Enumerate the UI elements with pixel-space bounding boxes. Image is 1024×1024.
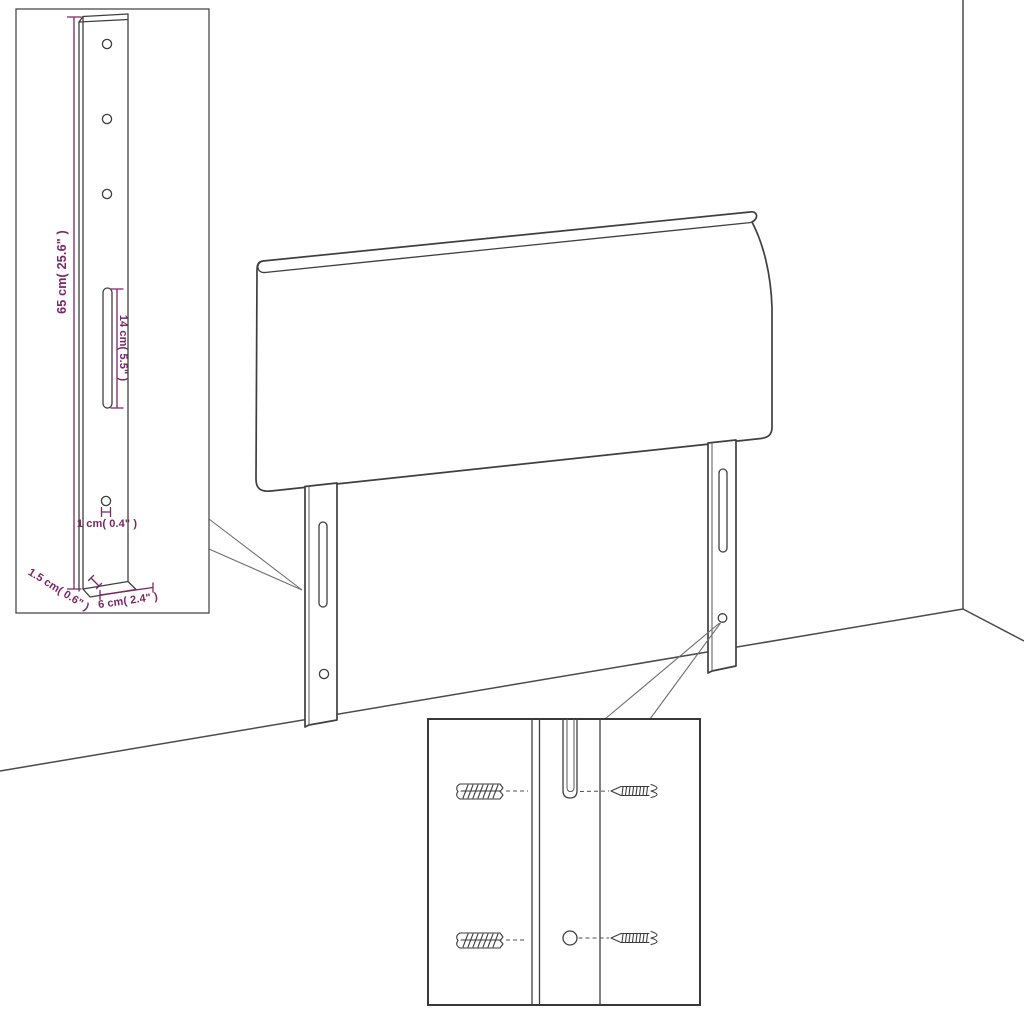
slot-dimension-label: 14 cm( 5.5" ) [117, 315, 129, 382]
bracket-drawing [79, 14, 136, 597]
hardware-inset-leader-lines [605, 623, 721, 719]
hardware-inset-border [428, 719, 700, 1005]
hardware-detail-inset [428, 719, 700, 1005]
callout-leaders [209, 519, 721, 719]
bracket-top-inner-edge [79, 20, 128, 23]
left-leg [305, 483, 337, 727]
left-leg-body [305, 483, 337, 727]
height-dimension-label: 65 cm( 25.6" ) [55, 230, 69, 314]
bracket-inset-leader-lines [209, 519, 302, 590]
headboard-assembly-diagram: 65 cm( 25.6" ) 14 cm( 5.5" ) 1 cm( 0.4" … [0, 0, 1024, 1024]
panel-outline [256, 212, 772, 491]
bracket-hole-3 [102, 189, 111, 198]
right-leg [708, 440, 736, 673]
hole-dimension-bracket [102, 508, 111, 517]
depth-dimension-label: 1.5 cm( 0.6" ) [26, 566, 92, 613]
bracket-slot [103, 288, 112, 408]
diagram-canvas: 65 cm( 25.6" ) 14 cm( 5.5" ) 1 cm( 0.4" … [0, 0, 1024, 1024]
bracket-detail-inset: 65 cm( 25.6" ) 14 cm( 5.5" ) 1 cm( 0.4" … [16, 9, 209, 614]
bracket-hole-1 [102, 39, 111, 48]
bracket-hole-2 [102, 114, 111, 123]
headboard-panel [256, 212, 772, 491]
hole-dimension-label: 1 cm( 0.4" ) [77, 518, 137, 530]
dimension-lines [68, 17, 154, 600]
bracket-small-hole [101, 496, 110, 505]
